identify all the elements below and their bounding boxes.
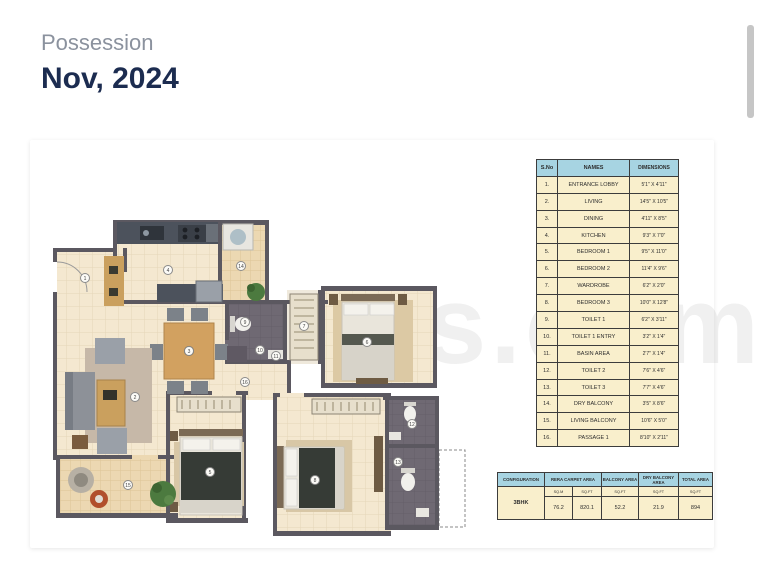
table-header-row: S.No NAMES DIMENSIONS <box>537 160 679 177</box>
dry-balcony-sqft-value: 21.9 <box>639 497 679 520</box>
table-cell: 16. <box>537 430 558 447</box>
table-row: 16.PASSAGE 18'10" X 2'11" <box>537 430 679 447</box>
table-cell: PASSAGE 1 <box>558 430 630 447</box>
table-cell: 9. <box>537 312 558 329</box>
table-cell: BEDROOM 1 <box>558 244 630 261</box>
room-table-body: 1.ENTRANCE LOBBY5'1" X 4'11"2.LIVING14'5… <box>537 176 679 446</box>
table-row: 10.TOILET 1 ENTRY3'2" X 1'4" <box>537 328 679 345</box>
table-cell: 4. <box>537 227 558 244</box>
unit-sqft: SQ.FT <box>602 487 639 497</box>
table-cell: 8'10" X 2'11" <box>630 430 679 447</box>
table-cell: TOILET 2 <box>558 362 630 379</box>
table-cell: 6'2" X 2'0" <box>630 278 679 295</box>
table-cell: 5. <box>537 244 558 261</box>
table-cell: KITCHEN <box>558 227 630 244</box>
table-cell: TOILET 3 <box>558 379 630 396</box>
table-cell: 9'5" X 11'0" <box>630 244 679 261</box>
header-sno: S.No <box>537 160 558 177</box>
table-cell: 6'2" X 3'11" <box>630 312 679 329</box>
table-row: 15.LIVING BALCONY10'6" X 5'0" <box>537 413 679 430</box>
configuration-value: 3BHK <box>498 487 545 520</box>
table-cell: 1. <box>537 176 558 193</box>
table-cell: BEDROOM 2 <box>558 261 630 278</box>
total-sqft-value: 894 <box>679 497 713 520</box>
unit-sqft: SQ.FT <box>573 487 602 497</box>
vertical-scrollbar-thumb[interactable] <box>747 25 754 118</box>
table-row: 12.TOILET 27'6" X 4'6" <box>537 362 679 379</box>
floor-plan-page: Possession Nov, 2024 es.com <box>0 0 758 564</box>
table-row: 5.BEDROOM 19'5" X 11'0" <box>537 244 679 261</box>
table-cell: 15. <box>537 413 558 430</box>
table-row: 4.KITCHEN9'3" X 7'0" <box>537 227 679 244</box>
table-cell: LIVING <box>558 193 630 210</box>
table-cell: 3'2" X 1'4" <box>630 328 679 345</box>
table-cell: 2. <box>537 193 558 210</box>
header-balcony-area: BALCONY AREA <box>602 473 639 487</box>
configuration-area-table: CONFIGURATION RERA CARPET AREA BALCONY A… <box>497 472 713 520</box>
floor-plan-image[interactable]: 12345678910111213141516 <box>40 150 490 540</box>
unit-sqft: SQ.FT <box>679 487 713 497</box>
header-configuration: CONFIGURATION <box>498 473 545 487</box>
table-cell: 7'7" X 4'6" <box>630 379 679 396</box>
table-cell: 4'11" X 8'5" <box>630 210 679 227</box>
table-cell: 7. <box>537 278 558 295</box>
table-cell: 7'6" X 4'6" <box>630 362 679 379</box>
rera-sqft-value: 820.1 <box>573 497 602 520</box>
table-cell: 11'4" X 9'6" <box>630 261 679 278</box>
room-dimensions-table: S.No NAMES DIMENSIONS 1.ENTRANCE LOBBY5'… <box>536 159 679 447</box>
table-cell: 10'0" X 12'8" <box>630 295 679 312</box>
header-names: NAMES <box>558 160 630 177</box>
table-cell: TOILET 1 <box>558 312 630 329</box>
table-cell: 9'3" X 7'0" <box>630 227 679 244</box>
table-row: 9.TOILET 16'2" X 3'11" <box>537 312 679 329</box>
possession-date: Nov, 2024 <box>41 62 179 96</box>
table-cell: 2'7" X 1'4" <box>630 345 679 362</box>
table-cell: 6. <box>537 261 558 278</box>
table-cell: 3. <box>537 210 558 227</box>
room-number-marker: 7 <box>299 321 309 331</box>
table-cell: BEDROOM 3 <box>558 295 630 312</box>
header-rera-carpet-area: RERA CARPET AREA <box>545 473 602 487</box>
room-number-marker: 15 <box>123 480 133 490</box>
header-dimensions: DIMENSIONS <box>630 160 679 177</box>
table-cell: ENTRANCE LOBBY <box>558 176 630 193</box>
table-cell: BASIN AREA <box>558 345 630 362</box>
room-number-marker: 8 <box>310 475 320 485</box>
table-cell: DINING <box>558 210 630 227</box>
possession-label: Possession <box>41 30 154 56</box>
table-row: 6.BEDROOM 211'4" X 9'6" <box>537 261 679 278</box>
table-row: 2.LIVING14'5" X 10'5" <box>537 193 679 210</box>
table-row: 7.WARDROBE6'2" X 2'0" <box>537 278 679 295</box>
table-row: 14.DRY BALCONY3'5" X 8'6" <box>537 396 679 413</box>
table-row: 13.TOILET 37'7" X 4'6" <box>537 379 679 396</box>
header-total-area: TOTAL AREA <box>679 473 713 487</box>
table-cell: 11. <box>537 345 558 362</box>
balcony-sqft-value: 52.2 <box>602 497 639 520</box>
table-cell: 10'6" X 5'0" <box>630 413 679 430</box>
room-number-marker: 2 <box>130 392 140 402</box>
area-header-row: CONFIGURATION RERA CARPET AREA BALCONY A… <box>498 473 713 487</box>
room-number-marker: 3 <box>184 346 194 356</box>
table-row: 11.BASIN AREA2'7" X 1'4" <box>537 345 679 362</box>
unit-sqft: SQ.FT <box>639 487 679 497</box>
floor-plan-svg <box>40 150 490 540</box>
room-number-marker: 16 <box>240 377 250 387</box>
table-cell: 8. <box>537 295 558 312</box>
room-number-marker: 11 <box>271 351 281 361</box>
table-cell: 14'5" X 10'5" <box>630 193 679 210</box>
table-row: 1.ENTRANCE LOBBY5'1" X 4'11" <box>537 176 679 193</box>
table-cell: 3'5" X 8'6" <box>630 396 679 413</box>
table-cell: WARDROBE <box>558 278 630 295</box>
table-cell: 10. <box>537 328 558 345</box>
table-cell: TOILET 1 ENTRY <box>558 328 630 345</box>
table-cell: 5'1" X 4'11" <box>630 176 679 193</box>
room-number-marker: 6 <box>362 337 372 347</box>
rera-sqm-value: 76.2 <box>545 497 573 520</box>
table-row: 8.BEDROOM 310'0" X 12'8" <box>537 295 679 312</box>
room-number-marker: 5 <box>205 467 215 477</box>
table-cell: LIVING BALCONY <box>558 413 630 430</box>
room-number-marker: 9 <box>240 317 250 327</box>
room-number-marker: 4 <box>163 265 173 275</box>
room-number-marker: 12 <box>407 419 417 429</box>
room-number-marker: 13 <box>393 457 403 467</box>
table-row: 3.DINING4'11" X 8'5" <box>537 210 679 227</box>
room-number-marker: 1 <box>80 273 90 283</box>
area-units-row: 3BHK SQ.M SQ.FT SQ.FT SQ.FT SQ.FT <box>498 487 713 497</box>
table-cell: 13. <box>537 379 558 396</box>
unit-sqm: SQ.M <box>545 487 573 497</box>
table-cell: DRY BALCONY <box>558 396 630 413</box>
room-number-marker: 14 <box>236 261 246 271</box>
header-dry-balcony-area: DRY BALCONY AREA <box>639 473 679 487</box>
table-cell: 14. <box>537 396 558 413</box>
table-cell: 12. <box>537 362 558 379</box>
room-number-marker: 10 <box>255 345 265 355</box>
